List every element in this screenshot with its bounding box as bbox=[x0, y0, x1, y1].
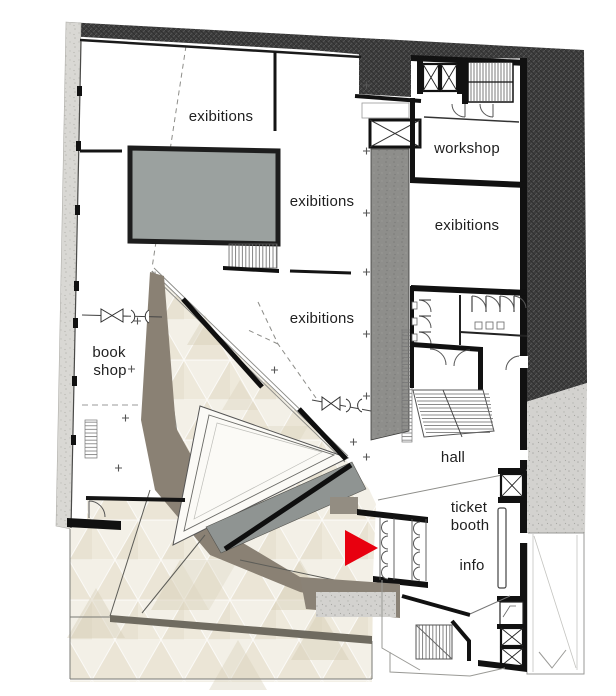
site-hatch-notch bbox=[359, 49, 411, 97]
ticket-counter bbox=[498, 508, 506, 588]
elevator-ticket bbox=[498, 468, 526, 503]
vestibule-side-block bbox=[330, 497, 358, 514]
floor-plan-canvas: exibitions exibitions exibitions worksho… bbox=[0, 0, 616, 696]
double-door-right bbox=[312, 397, 371, 412]
service-room bbox=[497, 596, 526, 626]
wc-south-wall bbox=[412, 342, 482, 352]
bookshop-wall-stair bbox=[85, 420, 97, 458]
workshop-north-wall bbox=[424, 117, 519, 122]
entry-diagonal-wall bbox=[402, 596, 470, 615]
floor-plan-drawing: exibitions exibitions exibitions worksho… bbox=[0, 0, 616, 696]
exhibitions-right-south-wall bbox=[411, 285, 527, 296]
stair-entry bbox=[416, 621, 469, 661]
wall-vertical-hall bbox=[478, 347, 483, 390]
corridor-west-wall bbox=[410, 98, 415, 183]
exterior-wall-left-concrete bbox=[56, 22, 81, 529]
void-room-gray bbox=[130, 148, 278, 244]
workshop-south-wall bbox=[410, 177, 527, 188]
east-wall-gap3 bbox=[519, 533, 528, 543]
stair-below-void-room bbox=[223, 244, 279, 273]
stair-northeast bbox=[462, 61, 513, 104]
label-ticket-line2: booth bbox=[451, 517, 490, 534]
label-exhibitions-top: exibitions bbox=[189, 108, 254, 125]
wc-block bbox=[412, 295, 527, 345]
east-wall-gap1 bbox=[519, 356, 528, 368]
core-louver bbox=[362, 103, 409, 118]
entry-block-concrete bbox=[316, 592, 396, 617]
elevator-pair bbox=[417, 61, 462, 94]
door-swings-wc bbox=[430, 349, 520, 370]
label-exhibitions-right: exibitions bbox=[435, 217, 500, 234]
stair-hall bbox=[413, 390, 494, 437]
east-wall-gap2 bbox=[519, 450, 528, 460]
site-hatch-right-mass bbox=[526, 51, 587, 402]
label-workshop: workshop bbox=[433, 140, 500, 157]
door-swings-stair bbox=[452, 104, 493, 117]
sidewalk-concrete-right bbox=[526, 383, 587, 533]
label-ticket-line1: ticket bbox=[451, 499, 488, 516]
label-exhibitions-mid: exibitions bbox=[290, 193, 355, 210]
exterior-ramp-lower-right bbox=[527, 533, 584, 674]
label-info: info bbox=[460, 557, 485, 574]
label-exhibitions-center: exibitions bbox=[290, 310, 355, 327]
label-hall: hall bbox=[441, 449, 465, 466]
elevator-south-pair bbox=[497, 624, 526, 666]
wall-stub-mid bbox=[290, 271, 351, 273]
bookshop-south-wall bbox=[86, 498, 185, 500]
site-hatch-top-band bbox=[66, 22, 584, 59]
label-bookshop-line1: book bbox=[92, 344, 126, 361]
label-bookshop-line2: shop bbox=[93, 362, 126, 379]
entrance-doors bbox=[380, 518, 426, 581]
